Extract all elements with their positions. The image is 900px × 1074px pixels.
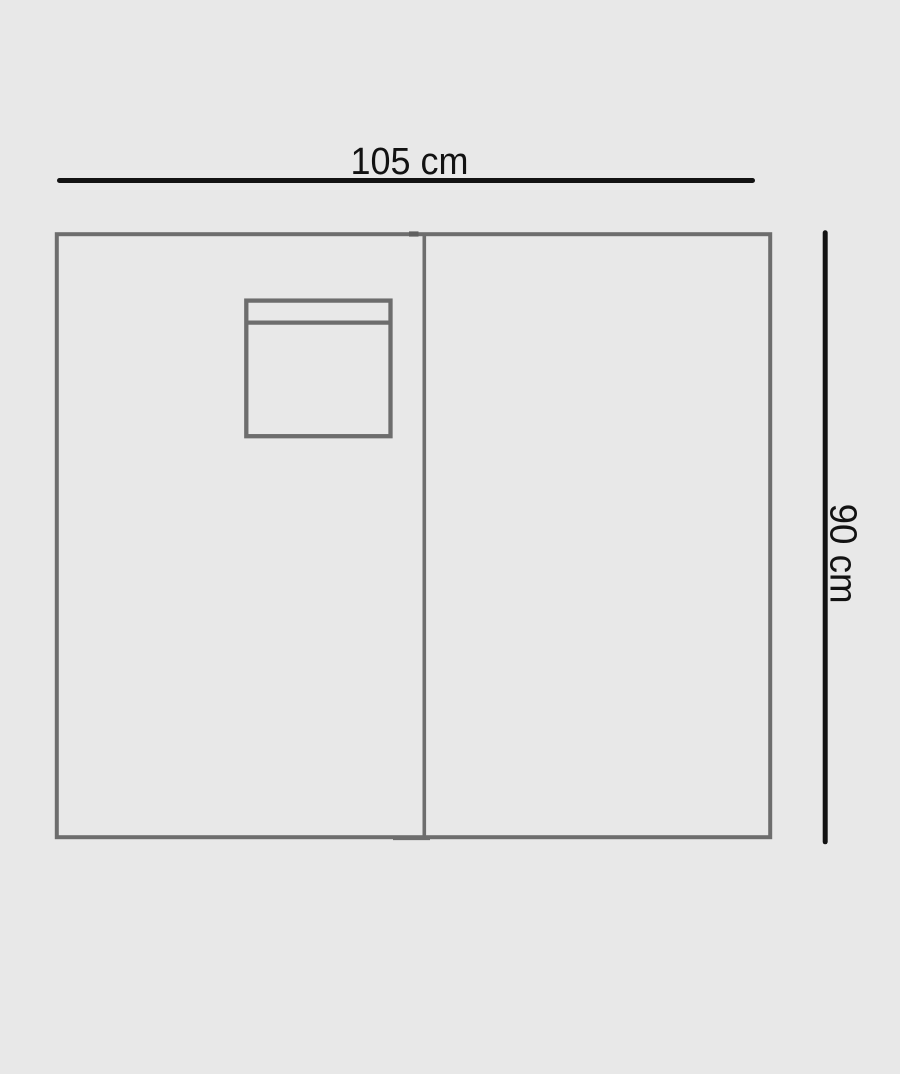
svg-text:105 cm: 105 cm (351, 141, 469, 183)
svg-text:90 cm: 90 cm (822, 504, 864, 604)
